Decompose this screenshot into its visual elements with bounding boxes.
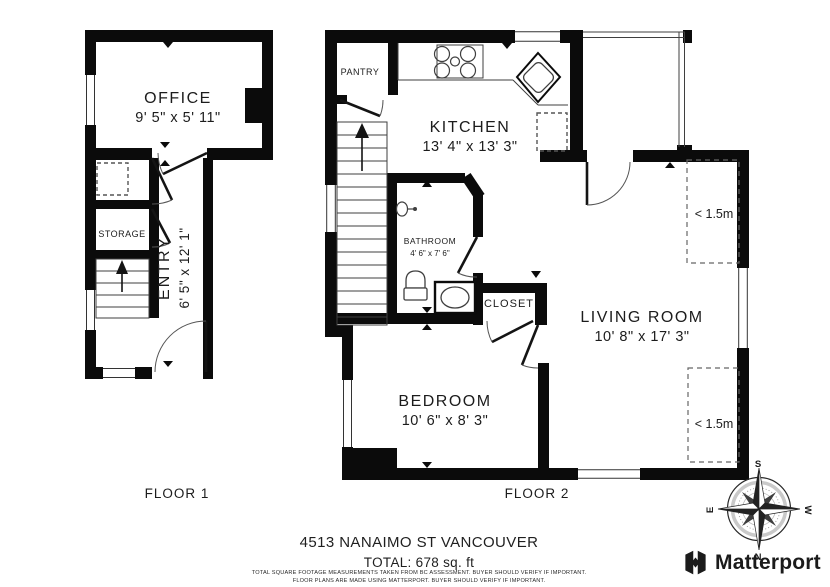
floor2-plan: PANTRY KITCHEN 13' 4" x 13' 3" BATHROOM … [325,25,760,485]
bathroom-dims: 4' 6" x 7' 6" [410,249,450,258]
floorplan-page: OFFICE 9' 5" x 5' 11" STORAGE ENTRY 6' 5… [0,0,830,587]
matterport-logo: Matterport [682,549,821,576]
stairs-up-arrow-floor2 [355,123,369,138]
deck-railing [583,32,685,147]
floor1-caption: FLOOR 1 [117,486,237,501]
bathroom-angled-wall [466,176,480,197]
floor2-threshold-markers [326,43,675,468]
compass-west: W [802,506,813,515]
living-room-dims: 10' 8" x 17' 3" [594,329,689,345]
appliance-dashed-box [97,163,128,195]
bathroom-label: BATHROOM [404,236,456,246]
kitchen-label: KITCHEN [430,119,511,136]
compass-east: E [705,507,716,513]
kitchen-sink [517,53,560,102]
stove [435,45,484,78]
bedroom-label: BEDROOM [398,393,491,410]
closet-label: CLOSET [484,298,534,310]
entry-dims: 6' 5" x 12' 1" [177,227,192,308]
floor2-stairs [337,122,387,325]
pantry-label: PANTRY [341,67,380,77]
compass-south: S [755,459,761,470]
floor1-plan: OFFICE 9' 5" x 5' 11" STORAGE ENTRY 6' 5… [78,22,278,387]
bathtub [435,282,475,313]
bathroom-sink [397,202,418,216]
storage-label: STORAGE [98,229,145,239]
matterport-logo-icon [682,549,709,576]
entry-label: ENTRY [156,236,173,300]
floor1-walls [85,30,273,379]
kitchen-dims: 13' 4" x 13' 3" [422,139,517,155]
floor2-caption: FLOOR 2 [477,486,597,501]
fridge-dashed-box [537,113,567,151]
stairs-up-arrow [116,260,128,274]
matterport-logo-text: Matterport [715,551,821,575]
office-label: OFFICE [144,90,212,107]
living-room-label: LIVING ROOM [580,309,703,326]
disclaimer-line-2: FLOOR PLANS ARE MADE USING MATTERPORT. B… [8,578,830,584]
bedroom-dims: 10' 6" x 8' 3" [402,413,489,429]
ceiling-height-annotation-1: < 1.5m [695,207,734,221]
ceiling-height-annotation-2: < 1.5m [695,417,734,431]
toilet [404,271,427,300]
office-dims: 9' 5" x 5' 11" [135,110,220,126]
